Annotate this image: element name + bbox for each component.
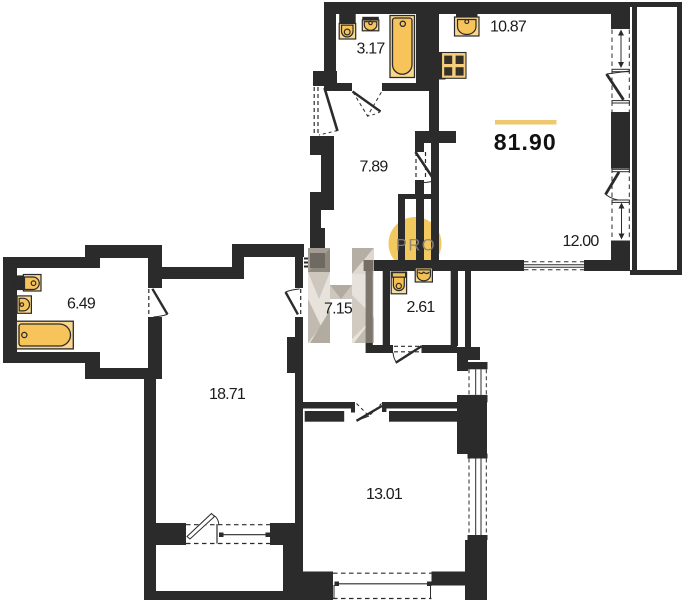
svg-text:10.87: 10.87 xyxy=(490,18,527,35)
svg-text:12.00: 12.00 xyxy=(562,233,599,250)
svg-text:18.71: 18.71 xyxy=(209,386,246,403)
svg-text:13.01: 13.01 xyxy=(366,486,403,503)
svg-text:6.49: 6.49 xyxy=(67,296,96,313)
svg-text:81.90: 81.90 xyxy=(494,129,557,155)
svg-text:7.15: 7.15 xyxy=(324,301,353,318)
svg-text:2.61: 2.61 xyxy=(407,299,436,316)
svg-text:3.17: 3.17 xyxy=(357,41,386,58)
svg-text:7.89: 7.89 xyxy=(360,159,389,176)
svg-text:PRO: PRO xyxy=(396,237,436,255)
